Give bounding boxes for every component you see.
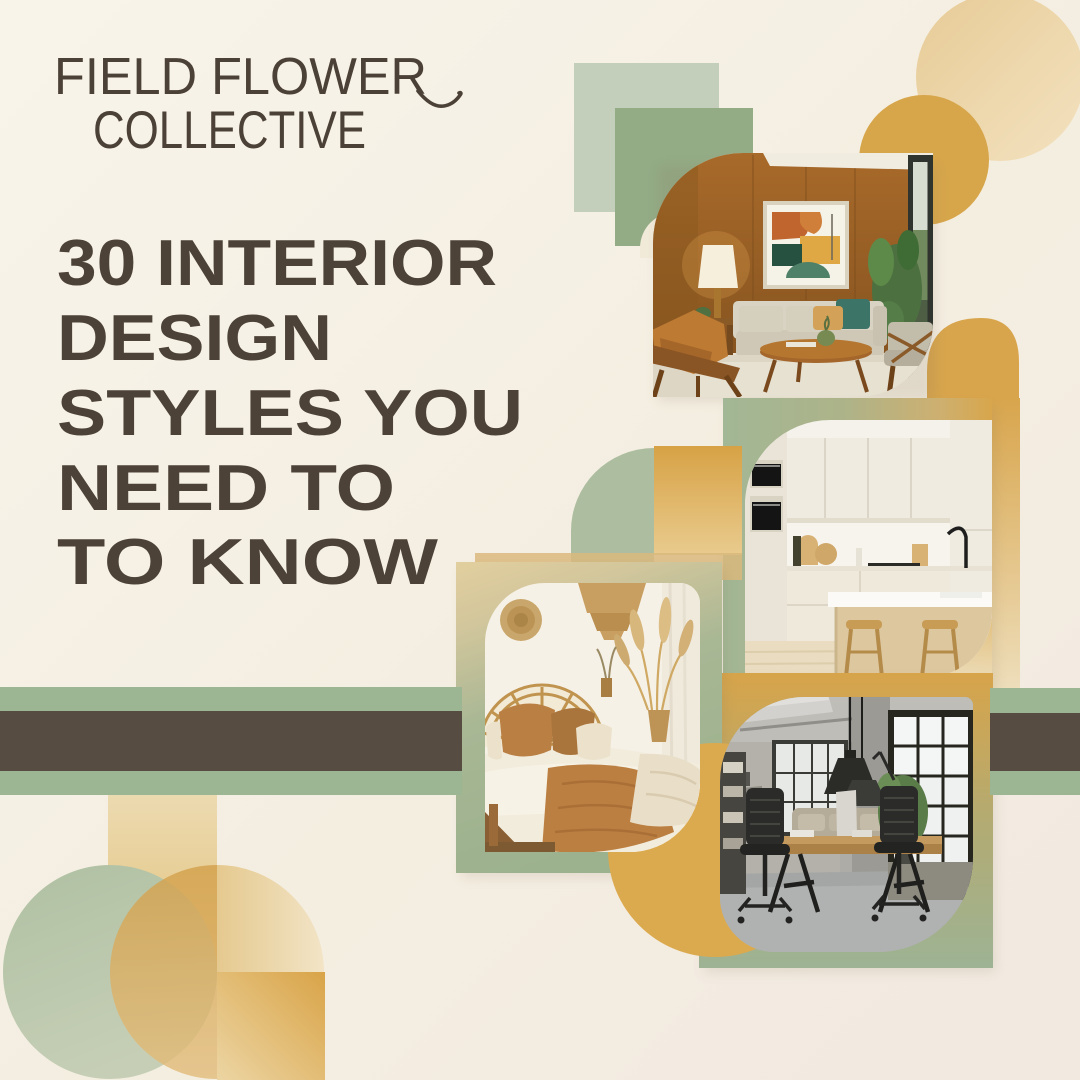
svg-text:FIELD FLOWER: FIELD FLOWER (54, 48, 427, 106)
svg-text:DESIGN: DESIGN (57, 301, 332, 374)
svg-text:COLLECTIVE: COLLECTIVE (93, 101, 366, 160)
svg-text:NEED TO: NEED TO (57, 451, 395, 524)
svg-text:30 INTERIOR: 30 INTERIOR (57, 226, 497, 299)
svg-text:STYLES YOU: STYLES YOU (57, 376, 523, 449)
svg-text:TO KNOW: TO KNOW (57, 525, 439, 598)
